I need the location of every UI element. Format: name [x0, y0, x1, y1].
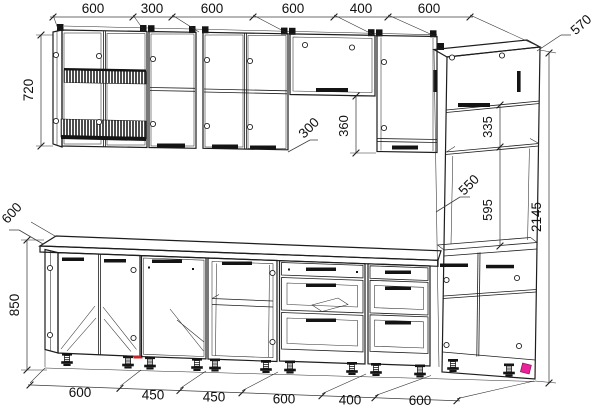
dim-flip-height: 360	[336, 115, 351, 137]
drawing-canvas: 600 300 600 600 400 600 600 450 450 600 …	[0, 0, 600, 406]
dim-top-6: 600	[418, 1, 441, 16]
wall-cabinet-600-double	[203, 32, 288, 150]
base-cabinet-run	[45, 250, 535, 382]
base-cabinet-600-doors	[45, 250, 140, 369]
wall-cabinet-400	[377, 36, 437, 153]
dim-internal-550: 550	[436, 172, 482, 212]
dim-internal-300: 300	[288, 115, 322, 152]
dim-internal-360: 360	[336, 93, 376, 157]
dim-left-850: 850	[7, 237, 47, 374]
dim-total-height: 2145	[529, 202, 544, 232]
wall-cabinet-600-flipup	[290, 34, 375, 96]
dim-countertop-depth: 600	[0, 200, 25, 227]
wall-cabinet-run	[53, 24, 444, 153]
dim-wall-height: 720	[21, 79, 36, 102]
dim-bottom-4: 600	[273, 392, 296, 406]
dim-niche-width: 550	[456, 172, 483, 199]
dim-bottom-3: 450	[203, 390, 226, 405]
dim-top-5: 400	[350, 1, 373, 16]
wall-cabinet-300	[149, 32, 196, 149]
mounting-brackets	[57, 24, 444, 50]
technical-drawing-kitchen: 600 300 600 600 400 600 600 450 450 600 …	[0, 0, 600, 406]
dim-upper-niche: 335	[480, 116, 495, 138]
drawer-unit-600	[280, 261, 366, 375]
dim-top-2: 300	[141, 1, 164, 16]
dim-top-3: 600	[201, 1, 224, 16]
dim-right-2145: 2145	[529, 50, 556, 387]
dish-rack-lower	[61, 119, 146, 141]
tall-flip-door-handle	[458, 103, 490, 107]
dim-bottom-1: 600	[69, 385, 92, 400]
tall-cabinet-lower-doors	[440, 252, 522, 356]
dim-right-570: 570	[537, 12, 594, 51]
dim-left-720: 720	[21, 32, 53, 150]
dim-left-600-depth: 600	[0, 200, 55, 244]
dim-base-height: 850	[7, 294, 22, 317]
base-cabinet-450-door	[142, 256, 207, 371]
dim-lower-niche: 595	[480, 199, 495, 221]
dim-top-1: 600	[82, 1, 105, 16]
dim-internal-335-595: 335 595	[480, 102, 503, 250]
dim-bottom-5: 400	[339, 393, 362, 406]
drawer-unit-400	[368, 264, 430, 378]
base-cabinet-450-shelf	[208, 258, 277, 373]
dim-tall-depth: 570	[568, 12, 595, 38]
dim-top-chain: 600 300 600 600 400 600	[50, 1, 540, 47]
marker-pink	[520, 363, 531, 374]
dim-top-4: 600	[282, 1, 305, 16]
wall-cabinet-600-dishrack	[53, 30, 147, 148]
dim-wall-depth: 300	[296, 115, 323, 142]
dim-bottom-6: 600	[409, 393, 432, 406]
dish-rack-upper	[64, 68, 146, 84]
dim-bottom-2: 450	[142, 388, 165, 403]
